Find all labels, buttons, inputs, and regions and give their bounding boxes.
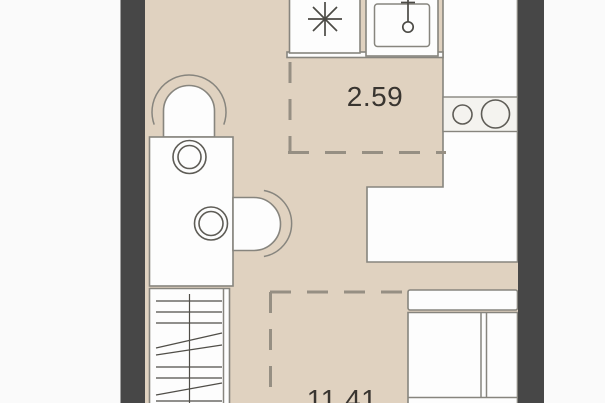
- fridge: [290, 0, 361, 53]
- snowflake-icon: [308, 2, 342, 36]
- hob: [443, 97, 518, 132]
- sink-outline: [366, 0, 438, 56]
- toilet-bowl: [233, 198, 281, 251]
- kitchen-sink: [366, 0, 438, 56]
- bathroom-counter: [150, 137, 234, 286]
- left-wall: [121, 0, 146, 403]
- bed-headboard: [408, 290, 518, 310]
- floor-plan: 2.59 11.41: [0, 0, 605, 403]
- living-area-label: 11.41: [302, 386, 382, 403]
- kitchen-area-label: 2.59: [340, 83, 410, 111]
- bed-body: [408, 313, 518, 403]
- bed: [408, 290, 518, 403]
- hob-outline: [443, 97, 518, 132]
- right-wall: [518, 0, 544, 403]
- bathroom-counter-outline: [150, 137, 234, 286]
- floor-plan-drawing: [0, 0, 605, 403]
- washbasin-bowl: [164, 86, 215, 137]
- wardrobe: [150, 289, 230, 403]
